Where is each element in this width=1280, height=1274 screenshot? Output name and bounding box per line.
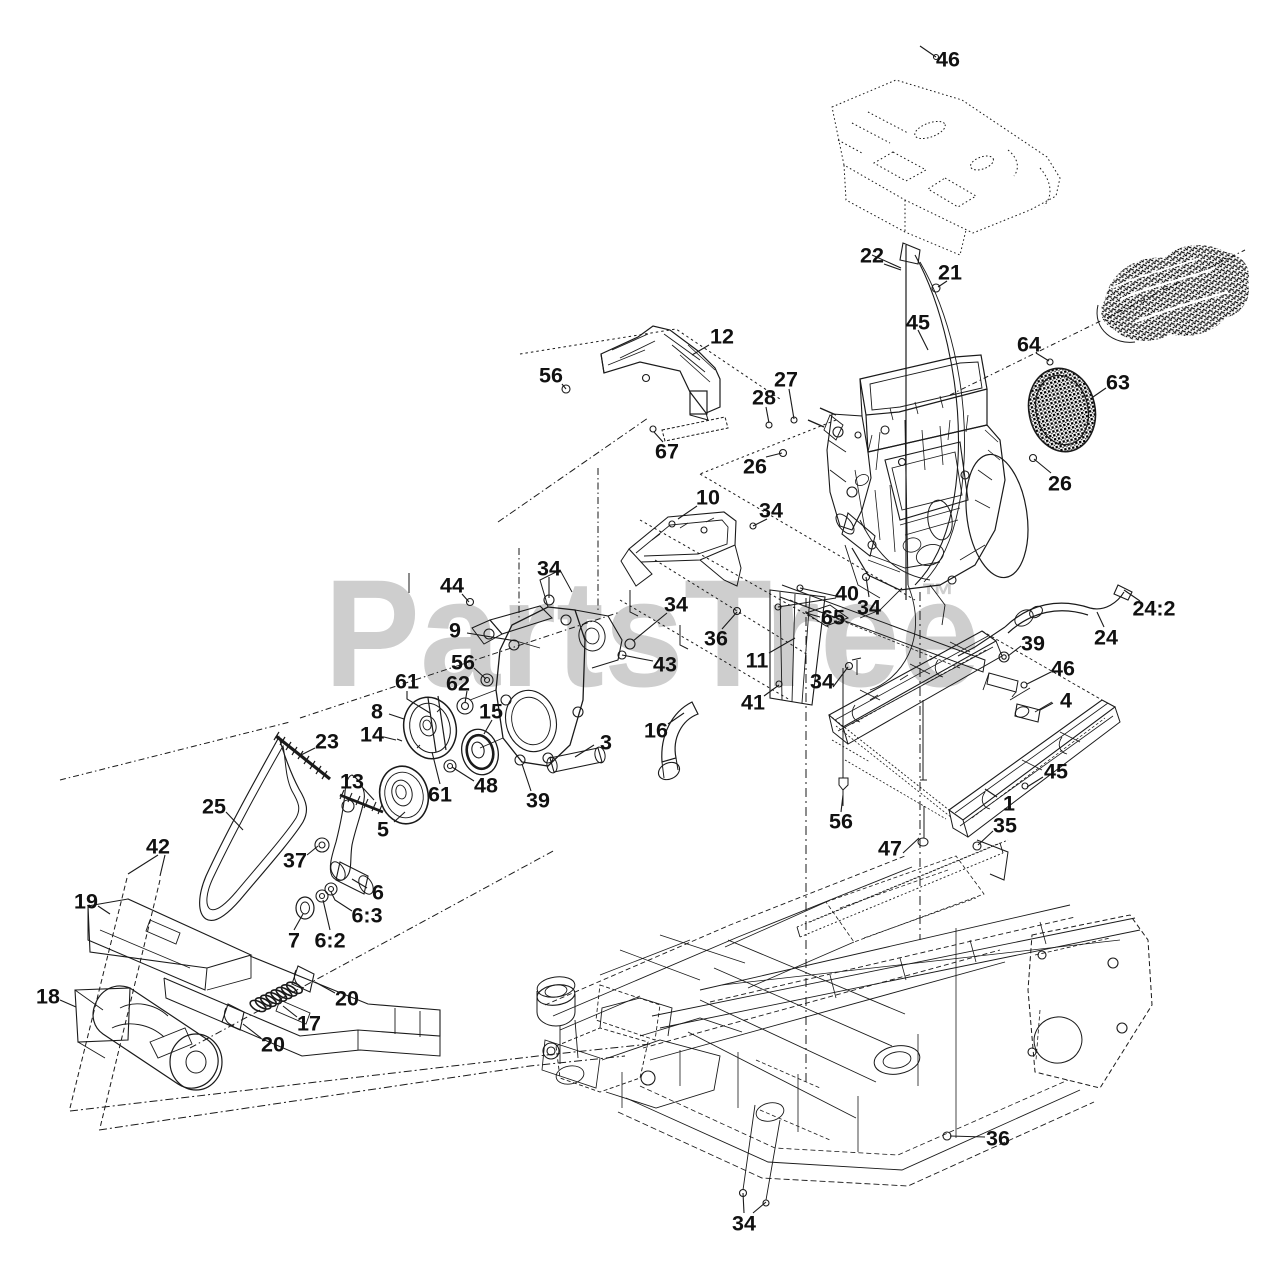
svg-text:56: 56 — [539, 364, 563, 388]
svg-text:1: 1 — [1003, 792, 1015, 816]
svg-text:36: 36 — [986, 1127, 1010, 1151]
svg-text:18: 18 — [36, 985, 60, 1009]
svg-text:56: 56 — [829, 810, 853, 834]
svg-text:26: 26 — [1048, 472, 1072, 496]
svg-text:41: 41 — [741, 691, 765, 715]
svg-text:21: 21 — [938, 261, 962, 285]
svg-text:10: 10 — [696, 486, 720, 510]
svg-text:47: 47 — [878, 837, 902, 861]
svg-text:43: 43 — [653, 653, 677, 677]
svg-text:11: 11 — [746, 649, 769, 673]
svg-text:23: 23 — [315, 730, 339, 754]
svg-text:5: 5 — [377, 818, 389, 842]
svg-text:25: 25 — [202, 795, 226, 819]
svg-text:19: 19 — [74, 890, 98, 914]
svg-text:6:2: 6:2 — [314, 929, 345, 953]
svg-text:35: 35 — [993, 814, 1017, 838]
svg-text:24: 24 — [1094, 626, 1118, 650]
svg-text:9: 9 — [449, 619, 461, 643]
svg-text:24:2: 24:2 — [1132, 597, 1175, 621]
svg-text:44: 44 — [440, 574, 464, 598]
svg-text:27: 27 — [774, 368, 798, 392]
svg-text:63: 63 — [1106, 371, 1130, 395]
svg-text:45: 45 — [1044, 760, 1068, 784]
svg-text:34: 34 — [664, 593, 688, 617]
svg-text:6:3: 6:3 — [351, 904, 382, 928]
svg-text:48: 48 — [474, 774, 498, 798]
svg-text:45: 45 — [906, 311, 930, 335]
svg-text:34: 34 — [759, 499, 783, 523]
svg-text:20: 20 — [335, 987, 359, 1011]
svg-text:20: 20 — [261, 1033, 285, 1057]
svg-text:14: 14 — [360, 723, 384, 747]
svg-text:65: 65 — [821, 606, 845, 630]
svg-text:4: 4 — [1060, 689, 1072, 713]
svg-text:39: 39 — [526, 789, 550, 813]
svg-text:34: 34 — [537, 557, 561, 581]
svg-text:62: 62 — [446, 672, 470, 696]
svg-text:40: 40 — [835, 582, 859, 606]
svg-text:39: 39 — [1021, 632, 1045, 656]
svg-text:26: 26 — [743, 455, 767, 479]
svg-text:12: 12 — [710, 325, 734, 349]
svg-text:34: 34 — [810, 670, 834, 694]
svg-text:3: 3 — [600, 731, 612, 755]
svg-text:61: 61 — [428, 783, 452, 807]
svg-text:15: 15 — [479, 700, 503, 724]
svg-text:34: 34 — [857, 596, 881, 620]
svg-text:8: 8 — [371, 700, 383, 724]
svg-text:22: 22 — [860, 244, 884, 268]
svg-text:46: 46 — [936, 48, 960, 72]
svg-text:67: 67 — [655, 440, 679, 464]
svg-text:6: 6 — [372, 881, 384, 905]
svg-text:61: 61 — [395, 670, 419, 694]
svg-text:34: 34 — [732, 1212, 756, 1236]
svg-text:17: 17 — [297, 1012, 321, 1036]
svg-text:64: 64 — [1017, 333, 1041, 357]
svg-text:7: 7 — [288, 929, 300, 953]
svg-text:36: 36 — [704, 627, 728, 651]
svg-text:37: 37 — [283, 849, 307, 873]
svg-text:16: 16 — [644, 719, 668, 743]
svg-text:13: 13 — [340, 770, 364, 794]
svg-text:46: 46 — [1051, 657, 1075, 681]
svg-text:42: 42 — [146, 835, 170, 859]
svg-text:28: 28 — [752, 386, 776, 410]
